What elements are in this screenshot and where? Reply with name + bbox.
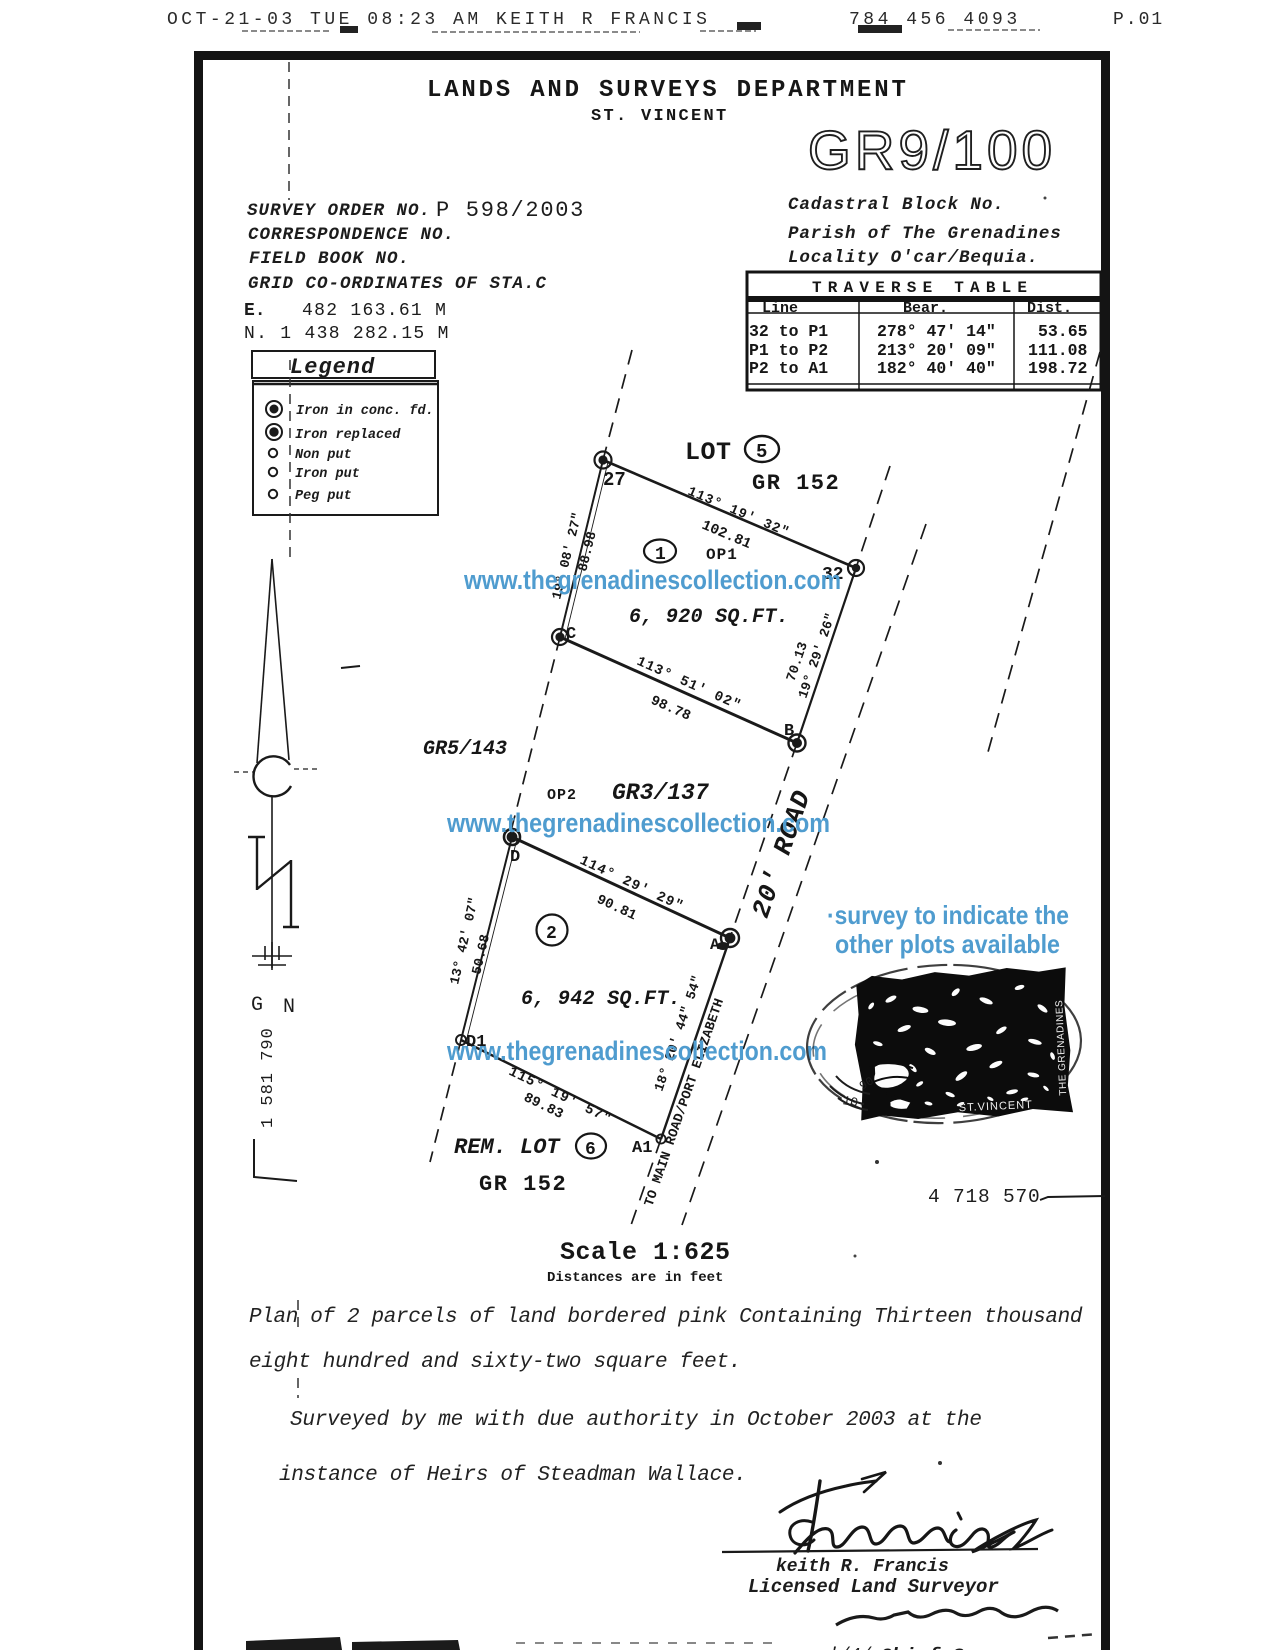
svg-text:other plots available: other plots available bbox=[835, 929, 1060, 959]
svg-text:instance of Heirs of Steadman: instance of Heirs of Steadman Wallace. bbox=[279, 1464, 746, 1487]
svg-text:Chief Surveyor: Chief Surveyor bbox=[880, 1646, 1048, 1650]
svg-text:eight hundred and sixty-two sq: eight hundred and sixty-two square feet. bbox=[249, 1351, 741, 1374]
svg-text:www.thegrenadinescollection.co: www.thegrenadinescollection.com bbox=[446, 1036, 827, 1066]
svg-text:www.thegrenadinescollection.co: www.thegrenadinescollection.com bbox=[463, 565, 841, 595]
svg-text:Licensed Land Surveyor: Licensed Land Surveyor bbox=[748, 1576, 999, 1598]
svg-text:keith R. Francis: keith R. Francis bbox=[776, 1557, 949, 1577]
svg-text:ST.VINCENT: ST.VINCENT bbox=[958, 1099, 1033, 1114]
svg-text:10: 10 bbox=[841, 1093, 859, 1110]
svg-text:Scale 1:625: Scale 1:625 bbox=[560, 1238, 731, 1267]
svg-text:'/4/.: '/4/. bbox=[828, 1646, 882, 1650]
svg-text:4 718 570: 4 718 570 bbox=[928, 1186, 1041, 1208]
svg-text:Surveyed by me with due author: Surveyed by me with due authority in Oct… bbox=[290, 1409, 982, 1432]
svg-text:Distances are in feet: Distances are in feet bbox=[547, 1270, 723, 1286]
svg-text:Plan of 2 parcels of land bord: Plan of 2 parcels of land bordered pink … bbox=[249, 1306, 1083, 1329]
svg-text:www.thegrenadinescollection.co: www.thegrenadinescollection.com bbox=[446, 808, 830, 838]
svg-text:·survey to indicate the: ·survey to indicate the bbox=[827, 900, 1069, 930]
